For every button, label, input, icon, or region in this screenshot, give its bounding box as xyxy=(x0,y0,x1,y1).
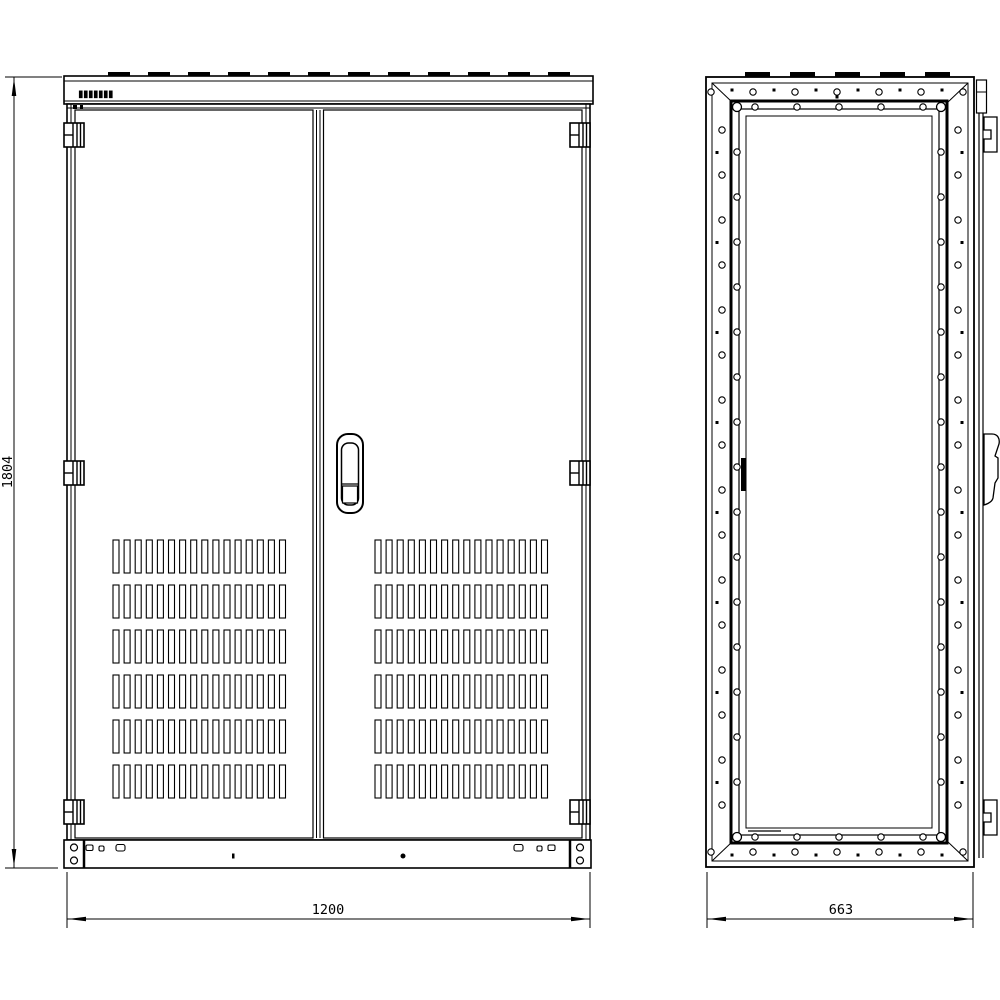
vent-slot xyxy=(486,585,492,618)
screw-icon xyxy=(955,487,961,493)
rivet-icon xyxy=(731,854,734,857)
vent-slot xyxy=(213,765,219,798)
vent-slot xyxy=(202,675,208,708)
vent-slot xyxy=(235,675,241,708)
vent-slot xyxy=(530,765,536,798)
rivet-icon xyxy=(716,331,719,334)
vent-slot xyxy=(508,675,514,708)
vent-slot xyxy=(464,720,470,753)
screw-icon xyxy=(734,689,740,695)
vent-slot xyxy=(453,585,459,618)
vent-slot xyxy=(453,540,459,573)
vent-slot xyxy=(408,585,414,618)
dimension-height: 1804 xyxy=(0,77,62,868)
rivet-icon xyxy=(857,854,860,857)
plinth-mark xyxy=(401,854,406,859)
vent-slot xyxy=(542,630,548,663)
vent-slot xyxy=(135,585,141,618)
vent-slot xyxy=(224,765,230,798)
screw-icon xyxy=(876,849,882,855)
vent-slot xyxy=(431,720,437,753)
rivet-icon xyxy=(836,96,839,99)
screw-icon xyxy=(719,802,725,808)
vent-slot xyxy=(442,540,448,573)
screw-icon xyxy=(794,104,800,110)
vent-slot xyxy=(508,540,514,573)
vent-slot xyxy=(213,540,219,573)
vent-slot xyxy=(442,675,448,708)
vent-slot xyxy=(408,630,414,663)
vent-slot xyxy=(442,630,448,663)
vent-slot xyxy=(386,675,392,708)
screw-icon xyxy=(955,442,961,448)
plinth-slot xyxy=(86,845,93,851)
vent-slot xyxy=(224,630,230,663)
rivet-icon xyxy=(716,151,719,154)
screw-icon xyxy=(876,89,882,95)
side-latch-mark xyxy=(741,458,746,491)
screw-icon xyxy=(836,834,842,840)
vent-slot xyxy=(191,540,197,573)
screw-icon xyxy=(938,239,944,245)
plinth-slot xyxy=(99,846,104,851)
screw-icon xyxy=(734,329,740,335)
vent-slot xyxy=(519,675,525,708)
vent-slot xyxy=(280,675,286,708)
screw-icon xyxy=(878,834,884,840)
vent-slot xyxy=(246,585,252,618)
screw-icon xyxy=(719,127,725,133)
vent-slot xyxy=(508,765,514,798)
screw-icon xyxy=(719,262,725,268)
plinth-hole xyxy=(71,857,78,864)
rivet-icon xyxy=(716,511,719,514)
vent-slot xyxy=(202,585,208,618)
vent-slot xyxy=(375,630,381,663)
vent-slot xyxy=(386,585,392,618)
front-top-cover xyxy=(64,76,593,104)
screw-icon xyxy=(719,442,725,448)
vent-slot xyxy=(157,720,163,753)
screw-icon xyxy=(734,419,740,425)
top-latch-mark xyxy=(80,105,83,109)
rivet-icon xyxy=(961,511,964,514)
vent-slot xyxy=(497,540,503,573)
vent-slot xyxy=(280,540,286,573)
technical-drawing: ▮▮▮▮▮▮▮ xyxy=(0,0,1000,1000)
vent-slot xyxy=(508,585,514,618)
screw-icon xyxy=(734,464,740,470)
dimension-width: 1200 xyxy=(67,872,590,928)
vent-slot xyxy=(397,585,403,618)
screw-icon xyxy=(938,419,944,425)
vent-slot xyxy=(542,585,548,618)
vent-slot xyxy=(202,720,208,753)
rivet-icon xyxy=(716,601,719,604)
screw-icon xyxy=(836,104,842,110)
vent-slot xyxy=(475,765,481,798)
vent-slot xyxy=(475,675,481,708)
screw-icon xyxy=(938,779,944,785)
vent-slot xyxy=(497,630,503,663)
vent-slot xyxy=(135,675,141,708)
rivet-icon xyxy=(961,421,964,424)
vent-slot xyxy=(519,765,525,798)
plinth-slot xyxy=(116,845,125,852)
vent-slot xyxy=(257,720,263,753)
vent-slot xyxy=(431,675,437,708)
rivet-icon xyxy=(773,89,776,92)
vent-slot xyxy=(180,720,186,753)
vent-slot xyxy=(486,540,492,573)
plinth-mark xyxy=(232,854,235,859)
vent-slot xyxy=(397,630,403,663)
vent-slot xyxy=(246,765,252,798)
vent-slot xyxy=(453,675,459,708)
corner-screw-icon xyxy=(733,833,742,842)
vent-slot xyxy=(157,540,163,573)
vent-slot xyxy=(246,540,252,573)
vent-slot xyxy=(475,630,481,663)
screw-icon xyxy=(960,89,966,95)
screw-icon xyxy=(938,464,944,470)
screw-icon xyxy=(734,374,740,380)
vent-slot xyxy=(431,765,437,798)
side-hinge-bracket xyxy=(984,800,997,835)
vent-slot xyxy=(169,675,175,708)
vent-slot xyxy=(419,675,425,708)
vent-slot xyxy=(113,675,119,708)
corner-screw-icon xyxy=(937,103,946,112)
screw-icon xyxy=(920,834,926,840)
screw-icon xyxy=(734,239,740,245)
vent-slot xyxy=(124,765,130,798)
roof-dash xyxy=(880,72,905,77)
vent-slot xyxy=(419,585,425,618)
rivet-icon xyxy=(716,691,719,694)
dimension-height-label: 1804 xyxy=(0,456,16,489)
vent-slot xyxy=(202,765,208,798)
vent-slot xyxy=(419,720,425,753)
vent-slot xyxy=(464,765,470,798)
vent-slot xyxy=(431,540,437,573)
vent-slot xyxy=(375,720,381,753)
rivet-icon xyxy=(899,89,902,92)
vent-slot xyxy=(508,720,514,753)
vent-slot xyxy=(442,765,448,798)
vent-slot xyxy=(268,540,274,573)
vent-slot xyxy=(530,675,536,708)
vent-slot xyxy=(213,585,219,618)
vent-slot xyxy=(235,585,241,618)
rivet-icon xyxy=(961,331,964,334)
side-handle-profile xyxy=(984,434,999,505)
nameplate-label: ▮▮▮▮▮▮▮ xyxy=(78,89,113,100)
roof-dash xyxy=(835,72,860,77)
screw-icon xyxy=(938,194,944,200)
screw-icon xyxy=(708,849,714,855)
vent-slot xyxy=(135,630,141,663)
vent-slot xyxy=(453,720,459,753)
vent-slot xyxy=(202,540,208,573)
vent-slot xyxy=(135,720,141,753)
vent-slot xyxy=(464,630,470,663)
vent-slot xyxy=(146,585,152,618)
screw-icon xyxy=(719,487,725,493)
vent-slot xyxy=(419,630,425,663)
vent-slot xyxy=(542,720,548,753)
roof-dash xyxy=(790,72,815,77)
vent-slot xyxy=(213,675,219,708)
door-hinge xyxy=(64,123,84,147)
door-hinge xyxy=(570,123,590,147)
vent-slot xyxy=(246,720,252,753)
vent-slot xyxy=(408,765,414,798)
vent-slot xyxy=(191,675,197,708)
vent-slot xyxy=(124,720,130,753)
screw-icon xyxy=(955,397,961,403)
rivet-icon xyxy=(716,241,719,244)
vent-slot xyxy=(191,630,197,663)
vent-slot xyxy=(146,720,152,753)
screw-icon xyxy=(955,802,961,808)
vent-slot xyxy=(235,720,241,753)
vent-slot xyxy=(235,540,241,573)
vent-slot xyxy=(486,720,492,753)
screw-icon xyxy=(955,307,961,313)
vent-slot xyxy=(453,630,459,663)
screw-icon xyxy=(938,644,944,650)
arrowhead-icon xyxy=(708,917,726,922)
vent-slot xyxy=(268,630,274,663)
screw-icon xyxy=(955,217,961,223)
vent-slot xyxy=(375,765,381,798)
rivet-icon xyxy=(857,89,860,92)
screw-icon xyxy=(792,89,798,95)
screw-icon xyxy=(734,644,740,650)
vent-slot xyxy=(419,765,425,798)
dimension-width-label: 1200 xyxy=(312,902,345,918)
vent-slot xyxy=(268,765,274,798)
rivet-icon xyxy=(961,601,964,604)
vent-slot xyxy=(113,630,119,663)
roof-dash xyxy=(925,72,950,77)
roof-dash xyxy=(745,72,770,77)
rivet-icon xyxy=(716,781,719,784)
vent-slot xyxy=(169,540,175,573)
vent-slot xyxy=(519,540,525,573)
rivet-icon xyxy=(961,151,964,154)
rivet-icon xyxy=(941,854,944,857)
vent-slot xyxy=(464,540,470,573)
vent-slot xyxy=(542,765,548,798)
rivet-icon xyxy=(961,241,964,244)
vent-slot xyxy=(180,675,186,708)
vent-slot xyxy=(519,720,525,753)
vent-slot xyxy=(530,630,536,663)
screw-icon xyxy=(955,352,961,358)
vent-slot xyxy=(386,630,392,663)
vent-slot xyxy=(280,765,286,798)
corner-screw-icon xyxy=(733,103,742,112)
screw-icon xyxy=(955,712,961,718)
vent-slot xyxy=(146,675,152,708)
vent-slot xyxy=(486,765,492,798)
roof-fixings xyxy=(745,72,950,77)
handle-lock xyxy=(343,486,358,503)
rivet-icon xyxy=(815,854,818,857)
vent-slot xyxy=(442,585,448,618)
vent-slot xyxy=(157,675,163,708)
vent-slot xyxy=(146,540,152,573)
vent-slot xyxy=(375,675,381,708)
vent-slot xyxy=(268,720,274,753)
screw-icon xyxy=(834,89,840,95)
vent-slot xyxy=(268,675,274,708)
vent-slot xyxy=(497,720,503,753)
vent-slot xyxy=(408,720,414,753)
screw-icon xyxy=(719,352,725,358)
screw-icon xyxy=(752,104,758,110)
vent-slot xyxy=(280,720,286,753)
arrowhead-icon xyxy=(954,917,972,922)
rivet-icon xyxy=(773,854,776,857)
side-door-edge xyxy=(977,80,1000,858)
vent-slot xyxy=(530,585,536,618)
door-hinge xyxy=(64,461,84,485)
vent-slot xyxy=(530,720,536,753)
rivet-icon xyxy=(716,421,719,424)
screw-icon xyxy=(938,374,944,380)
vent-slot xyxy=(508,630,514,663)
screw-icon xyxy=(719,712,725,718)
vent-slot xyxy=(397,675,403,708)
vent-slot xyxy=(497,585,503,618)
screw-icon xyxy=(955,262,961,268)
screw-icon xyxy=(955,757,961,763)
screw-icon xyxy=(794,834,800,840)
vent-slot xyxy=(224,675,230,708)
vent-slot xyxy=(157,585,163,618)
rivet-icon xyxy=(815,89,818,92)
vent-slot xyxy=(180,585,186,618)
vent-slot xyxy=(386,765,392,798)
vent-slot xyxy=(257,765,263,798)
vent-slot xyxy=(113,720,119,753)
vent-slot xyxy=(246,630,252,663)
arrowhead-icon xyxy=(68,917,86,922)
vent-slot xyxy=(135,540,141,573)
vent-slot xyxy=(257,675,263,708)
vent-slot xyxy=(280,585,286,618)
vent-slot xyxy=(169,630,175,663)
rivet-icon xyxy=(961,781,964,784)
vent-slot xyxy=(169,585,175,618)
screw-icon xyxy=(719,397,725,403)
vent-slot xyxy=(257,630,263,663)
screw-icon xyxy=(938,734,944,740)
corner-screw-icon xyxy=(937,833,946,842)
screw-icon xyxy=(918,849,924,855)
arrowhead-icon xyxy=(571,917,589,922)
screw-icon xyxy=(719,667,725,673)
door-hinge xyxy=(570,461,590,485)
vent-slot xyxy=(431,630,437,663)
vent-slot xyxy=(475,720,481,753)
vent-slot xyxy=(202,630,208,663)
vent-slot xyxy=(542,675,548,708)
edge-cap xyxy=(977,80,987,113)
vent-slot xyxy=(519,585,525,618)
screw-icon xyxy=(719,622,725,628)
vent-slot xyxy=(530,540,536,573)
vent-slot xyxy=(519,630,525,663)
vent-slot xyxy=(257,585,263,618)
screw-icon xyxy=(734,509,740,515)
screw-icon xyxy=(955,172,961,178)
vent-slot xyxy=(475,540,481,573)
screw-icon xyxy=(719,217,725,223)
screw-icon xyxy=(955,532,961,538)
screw-icon xyxy=(955,622,961,628)
screw-icon xyxy=(734,194,740,200)
vent-slot xyxy=(386,540,392,573)
screw-icon xyxy=(960,849,966,855)
plinth-hole xyxy=(71,844,78,851)
screw-icon xyxy=(719,172,725,178)
screw-icon xyxy=(955,127,961,133)
screw-icon xyxy=(734,599,740,605)
base-plinth xyxy=(64,840,591,868)
vent-slot xyxy=(235,630,241,663)
screw-icon xyxy=(750,89,756,95)
rivet-icon xyxy=(899,854,902,857)
screw-icon xyxy=(878,104,884,110)
rivet-icon xyxy=(731,89,734,92)
vent-slot xyxy=(124,630,130,663)
vent-slot xyxy=(486,630,492,663)
vent-slot xyxy=(431,585,437,618)
screw-icon xyxy=(734,554,740,560)
arrowhead-icon xyxy=(12,849,17,867)
door-hinge xyxy=(64,800,84,824)
screw-icon xyxy=(719,577,725,583)
screw-icon xyxy=(792,849,798,855)
screw-icon xyxy=(955,667,961,673)
screw-icon xyxy=(938,329,944,335)
vent-slot xyxy=(191,765,197,798)
screw-icon xyxy=(734,734,740,740)
screw-icon xyxy=(918,89,924,95)
vent-slot xyxy=(180,540,186,573)
screw-icon xyxy=(734,149,740,155)
vent-slot xyxy=(213,630,219,663)
vent-slot xyxy=(375,585,381,618)
vent-slot xyxy=(486,675,492,708)
vent-slot xyxy=(497,765,503,798)
vent-slot xyxy=(397,540,403,573)
vent-slot xyxy=(146,630,152,663)
screw-icon xyxy=(719,757,725,763)
door-hinge xyxy=(570,800,590,824)
vent-slot xyxy=(157,765,163,798)
top-latch-mark xyxy=(73,105,77,109)
vent-slot xyxy=(235,765,241,798)
plinth-slot xyxy=(514,845,523,852)
vent-slot xyxy=(475,585,481,618)
screw-icon xyxy=(734,284,740,290)
side-hinge-bracket xyxy=(984,117,997,152)
